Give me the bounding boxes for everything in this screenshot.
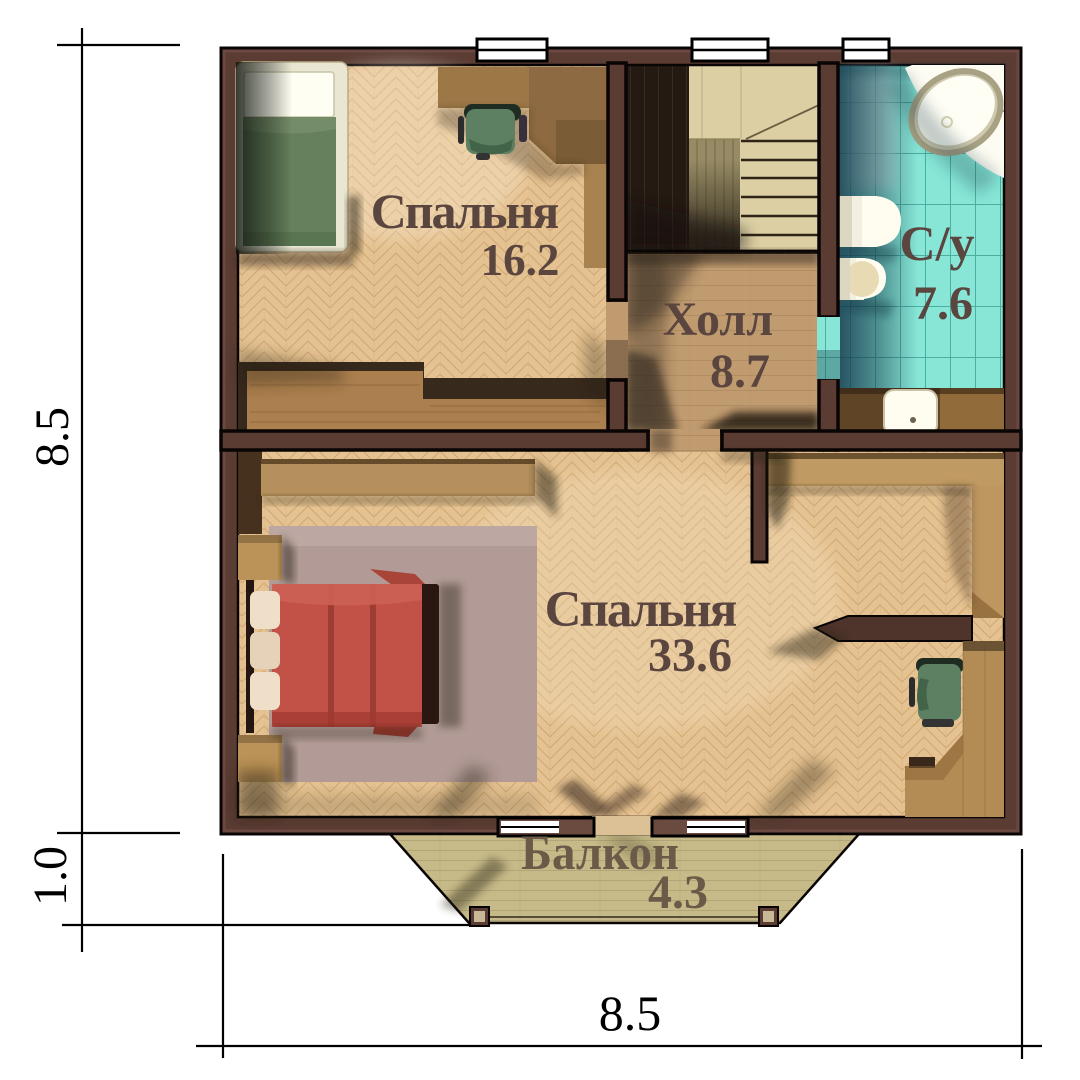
svg-text:С/у: С/у	[900, 215, 975, 271]
svg-text:33.6: 33.6	[648, 629, 732, 682]
svg-text:1.0: 1.0	[24, 846, 77, 906]
svg-text:4.3: 4.3	[648, 866, 708, 919]
svg-text:8.7: 8.7	[710, 345, 770, 398]
svg-text:8.5: 8.5	[26, 407, 79, 467]
svg-text:7.6: 7.6	[913, 277, 973, 330]
svg-text:Спальня: Спальня	[371, 183, 559, 239]
svg-text:16.2: 16.2	[481, 235, 560, 285]
svg-text:8.5: 8.5	[599, 985, 662, 1041]
svg-text:Холл: Холл	[663, 293, 773, 346]
